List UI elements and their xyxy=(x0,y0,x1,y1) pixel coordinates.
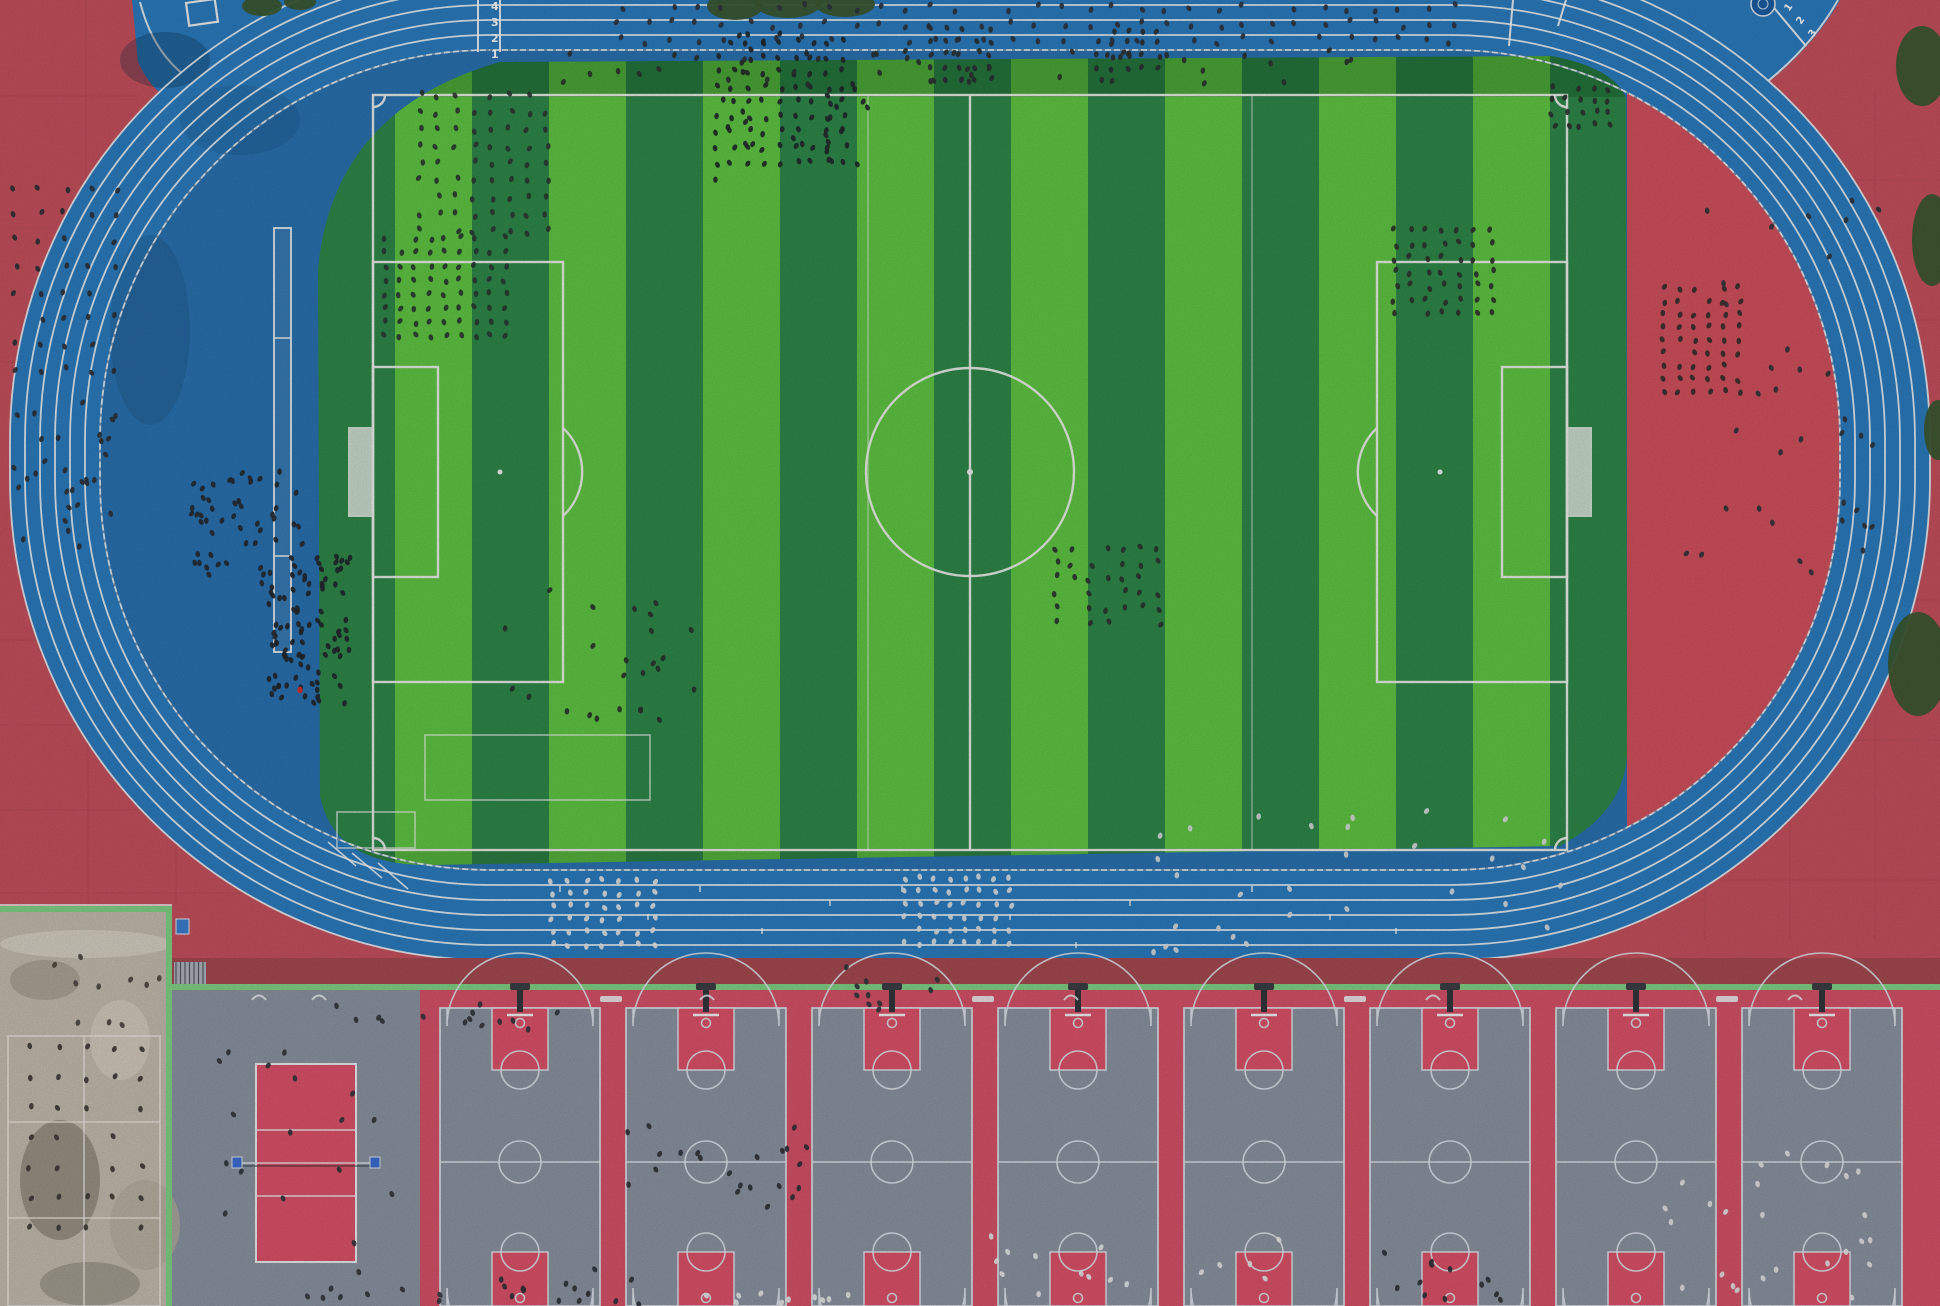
scene-canvas: Aerial drone view of a school sports com… xyxy=(0,0,1940,1306)
photo-grain-overlay xyxy=(0,0,1940,1306)
grain-rect xyxy=(0,0,1940,1306)
aerial-sports-complex-photo: Aerial drone view of a school sports com… xyxy=(0,0,1940,1306)
